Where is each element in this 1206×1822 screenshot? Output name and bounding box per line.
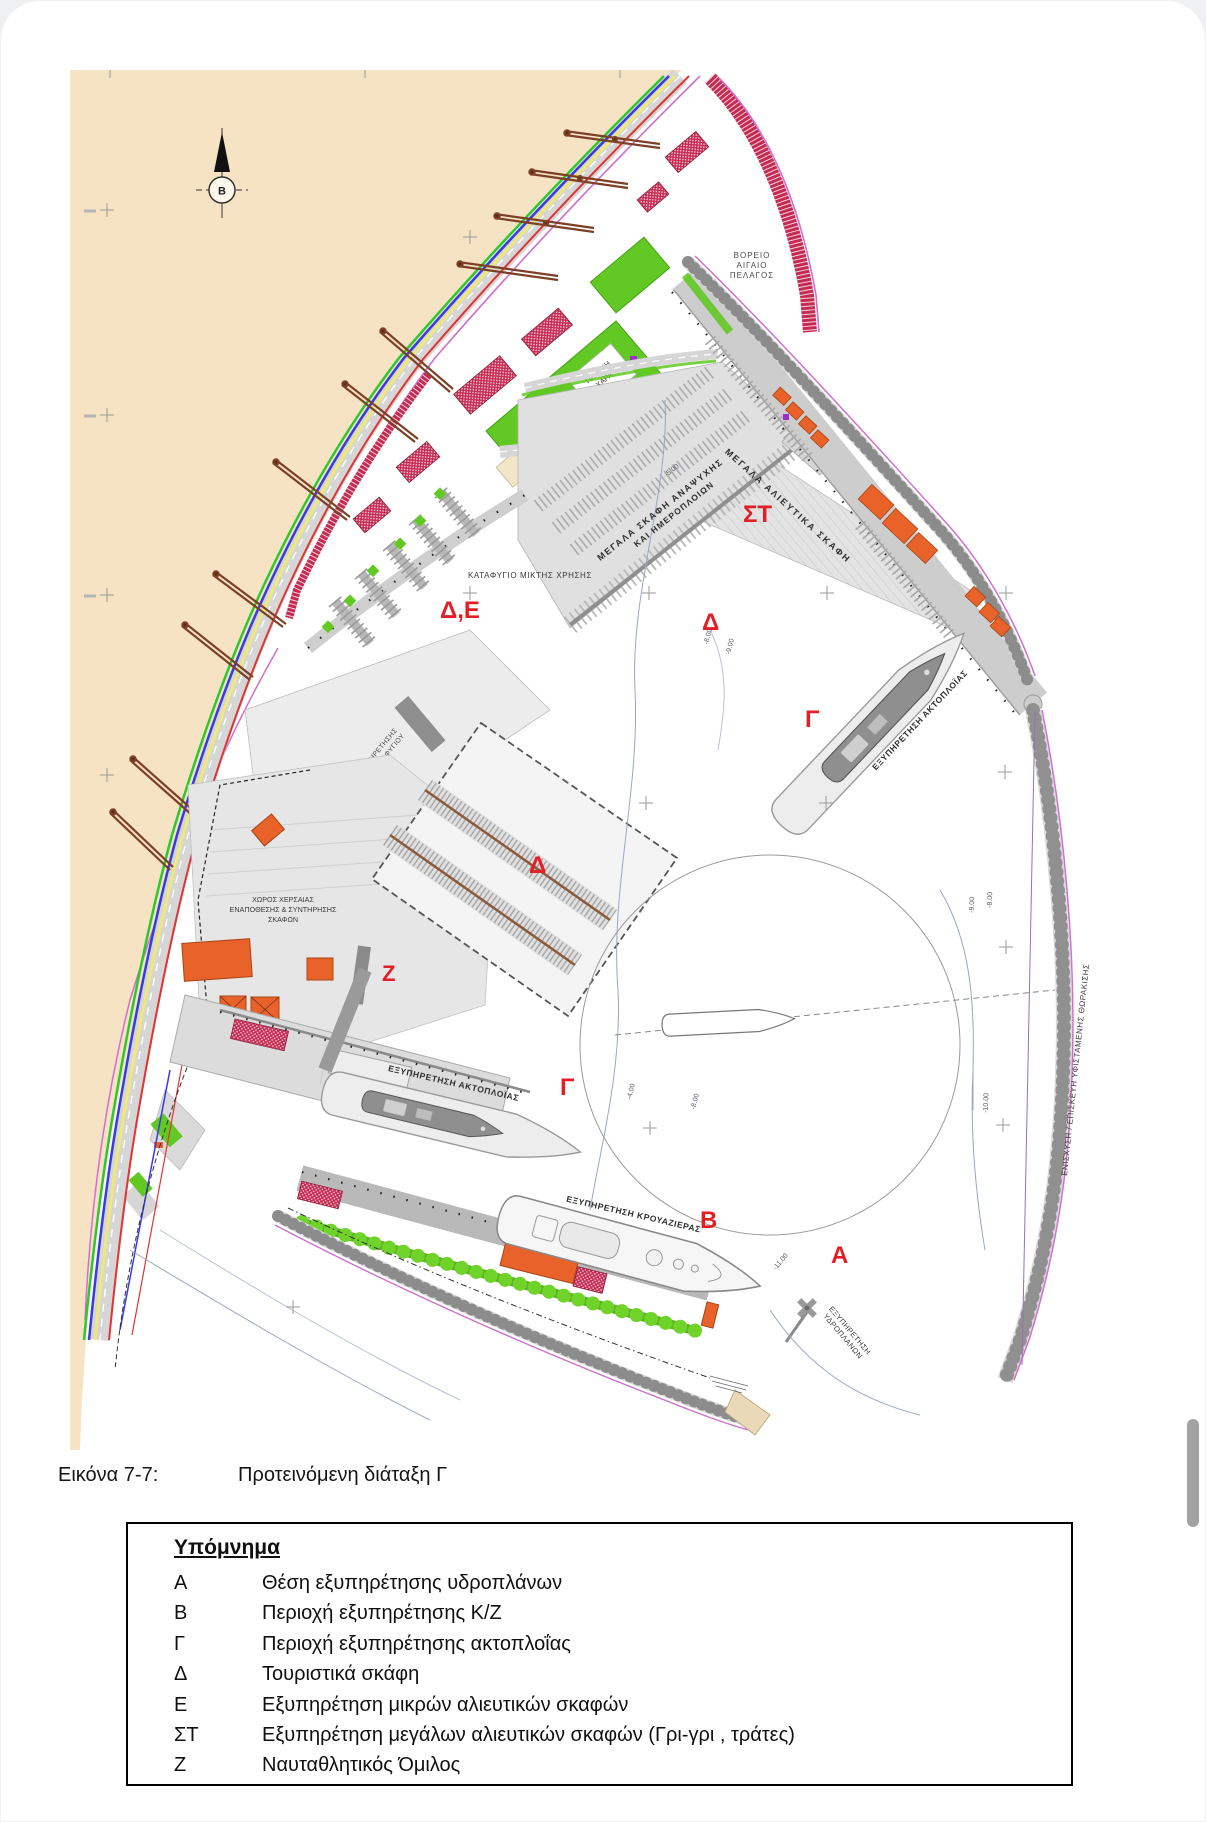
zone-club: Ζ xyxy=(382,961,395,986)
legend-desc-a: Θέση εξυπηρέτησης υδροπλάνων xyxy=(262,1568,1071,1598)
legend-desc-z: Ναυταθλητικός Όμιλος xyxy=(262,1750,1071,1780)
zone-ferry-east: Γ xyxy=(805,706,820,733)
svg-text:-9.00: -9.00 xyxy=(969,897,977,913)
mixed-refuge-label: ΚΑΤΑΦΥΓΙΟ ΜΙΚΤΗΣ ΧΡΗΣΗΣ xyxy=(468,571,592,580)
legend-desc-b: Περιοχή εξυπηρέτησης Κ/Ζ xyxy=(262,1598,1071,1628)
harbour-plan-svg: ΠΑΙΔΙΚΗ ΧΑΡΑ xyxy=(70,70,1140,1450)
legend-key-g: Γ xyxy=(174,1629,262,1659)
legend-key-st: ΣΤ xyxy=(174,1720,262,1750)
harbour-plan-map: ΠΑΙΔΙΚΗ ΧΑΡΑ xyxy=(70,70,1140,1450)
zone-boatyard: Δ xyxy=(529,852,546,879)
north-letter: Β xyxy=(218,186,226,198)
legend-box: Υπόμνημα Α Θέση εξυπηρέτησης υδροπλάνων … xyxy=(126,1522,1073,1786)
legend-key-b: Β xyxy=(174,1598,262,1628)
legend-desc-d: Τουριστικά σκάφη xyxy=(262,1659,1071,1689)
legend-row-st: ΣΤ Εξυπηρέτηση μεγάλων αλιευτικών σκαφών… xyxy=(174,1720,1071,1750)
svg-text:-10.00: -10.00 xyxy=(983,1093,991,1113)
legend-row-b: Β Περιοχή εξυπηρέτησης Κ/Ζ xyxy=(174,1598,1071,1628)
legend-desc-st: Εξυπηρέτηση μεγάλων αλιευτικών σκαφών (Γ… xyxy=(262,1720,1071,1750)
legend-title: Υπόμνημα xyxy=(174,1536,1071,1560)
legend-row-g: Γ Περιοχή εξυπηρέτησης ακτοπλοΐας xyxy=(174,1629,1071,1659)
svg-text:ΒΟΡΕΙΟ: ΒΟΡΕΙΟ xyxy=(734,251,771,260)
zone-leisure: Δ xyxy=(702,609,719,636)
legend-desc-e: Εξυπηρέτηση μικρών αλιευτικών σκαφών xyxy=(262,1690,1071,1720)
legend-desc-g: Περιοχή εξυπηρέτησης ακτοπλοΐας xyxy=(262,1629,1071,1659)
svg-text:ΑΙΓΑΙΟ: ΑΙΓΑΙΟ xyxy=(736,261,767,270)
legend-key-e: Ε xyxy=(174,1690,262,1720)
figure-caption: Εικόνα 7-7: Προτεινόμενη διάταξη Γ xyxy=(58,1464,958,1487)
svg-text:ΠΕΛΑΓΟΣ: ΠΕΛΑΓΟΣ xyxy=(730,271,774,280)
document-page: ΠΑΙΔΙΚΗ ΧΑΡΑ xyxy=(0,0,1206,1822)
yard-label-3: ΣΚΑΦΩΝ xyxy=(268,915,298,924)
vertical-scrollbar-thumb[interactable] xyxy=(1187,1419,1199,1527)
zone-seaplane: Α xyxy=(831,1242,848,1269)
yard-label-1: ΧΩΡΟΣ ΧΕΡΣΑΙΑΣ xyxy=(252,895,314,904)
legend-row-d: Δ Τουριστικά σκάφη xyxy=(174,1659,1071,1689)
legend-key-z: Ζ xyxy=(174,1750,262,1780)
svg-text:-8.00: -8.00 xyxy=(987,892,995,908)
zone-ferry-south: Γ xyxy=(560,1074,575,1101)
legend-row-z: Ζ Ναυταθλητικός Όμιλος xyxy=(174,1750,1071,1780)
legend-key-d: Δ xyxy=(174,1659,262,1689)
zone-cruise: Β xyxy=(700,1207,717,1234)
zone-fishing: ΣΤ xyxy=(743,501,772,528)
legend-row-e: Ε Εξυπηρέτηση μικρών αλιευτικών σκαφών xyxy=(174,1690,1071,1720)
legend-row-a: Α Θέση εξυπηρέτησης υδροπλάνων xyxy=(174,1568,1071,1598)
legend-key-a: Α xyxy=(174,1568,262,1598)
figure-caption-label: Εικόνα 7-7: xyxy=(58,1464,238,1487)
yard-label-2: ΕΝΑΠΟΘΕΣΗΣ & ΣΥΝΤΗΡΗΣΗΣ xyxy=(230,905,337,914)
figure-caption-title: Προτεινόμενη διάταξη Γ xyxy=(238,1464,447,1487)
zone-marina: Δ,Ε xyxy=(440,597,480,624)
